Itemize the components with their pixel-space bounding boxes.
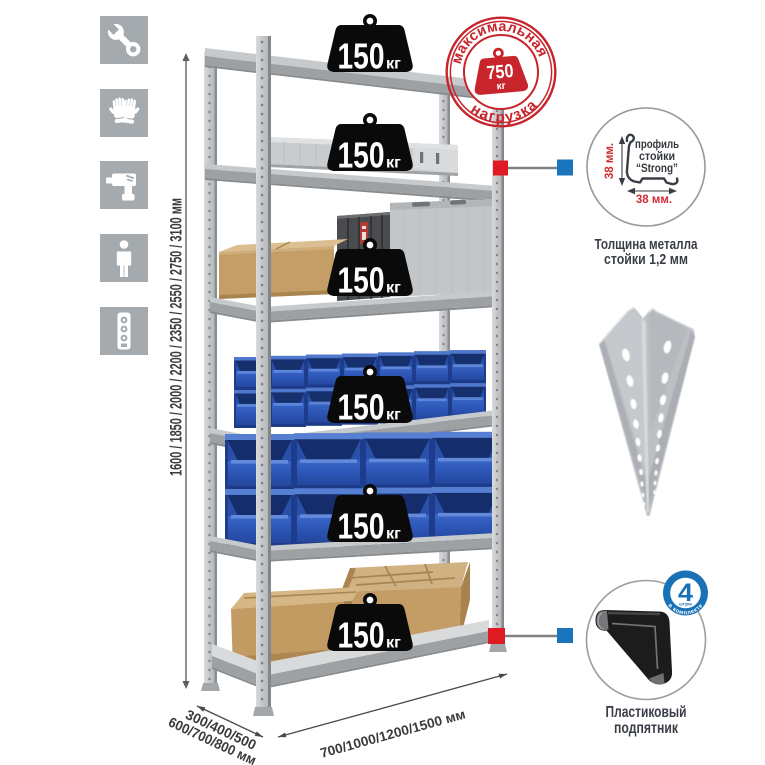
svg-text:150: 150 [338, 36, 385, 77]
svg-text:1600 / 1850 / 2000 / 2200 / 23: 1600 / 1850 / 2000 / 2200 / 2350 / 2550 … [168, 198, 186, 476]
svg-text:стойки: стойки [639, 151, 675, 163]
svg-text:подпятник: подпятник [614, 720, 679, 737]
svg-text:кг: кг [496, 81, 506, 93]
svg-text:профиль: профиль [635, 139, 679, 151]
svg-text:кг: кг [386, 56, 401, 73]
svg-text:38 мм.: 38 мм. [604, 143, 616, 179]
svg-text:стойки 1,2 мм: стойки 1,2 мм [604, 251, 688, 268]
svg-text:38 мм.: 38 мм. [636, 194, 672, 206]
svg-text:Пластиковый: Пластиковый [606, 704, 687, 721]
svg-text:штуки: штуки [679, 602, 692, 607]
svg-text:“Strong”: “Strong” [636, 163, 678, 175]
